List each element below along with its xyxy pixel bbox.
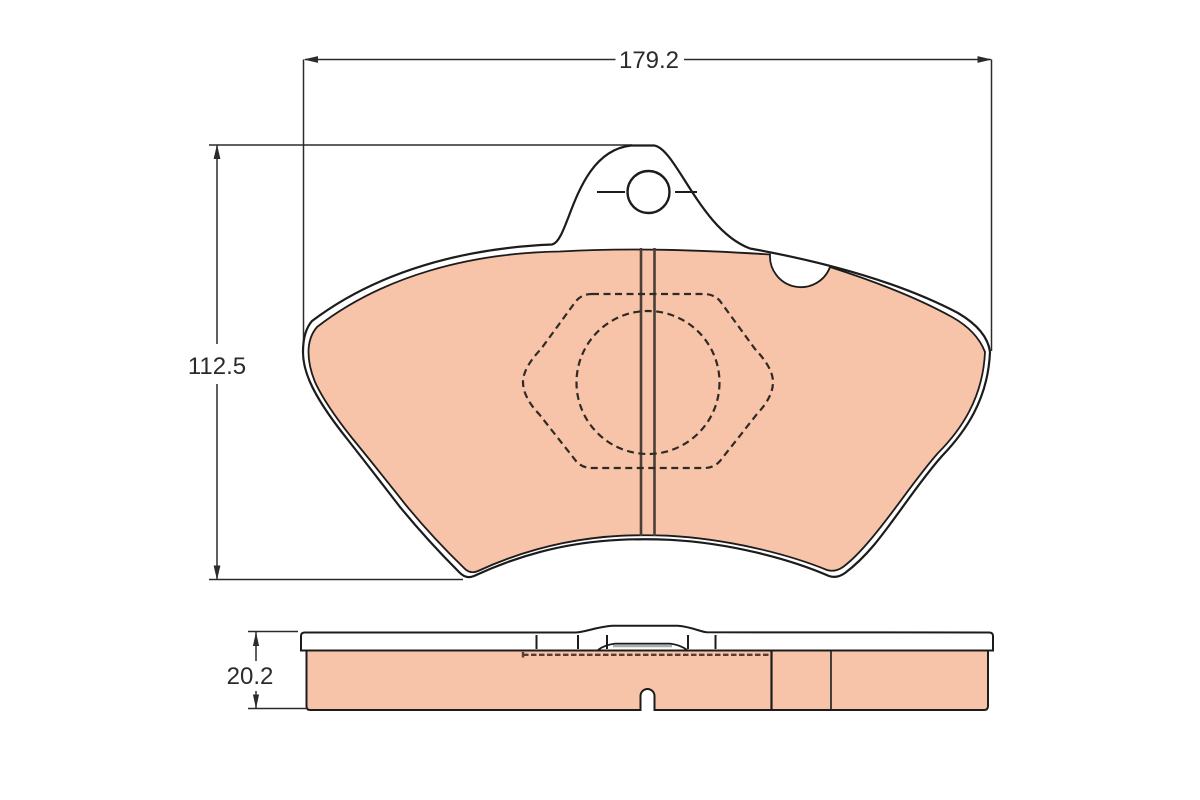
- svg-text:179.2: 179.2: [619, 47, 679, 74]
- svg-text:112.5: 112.5: [188, 353, 246, 380]
- svg-text:20.2: 20.2: [227, 663, 274, 690]
